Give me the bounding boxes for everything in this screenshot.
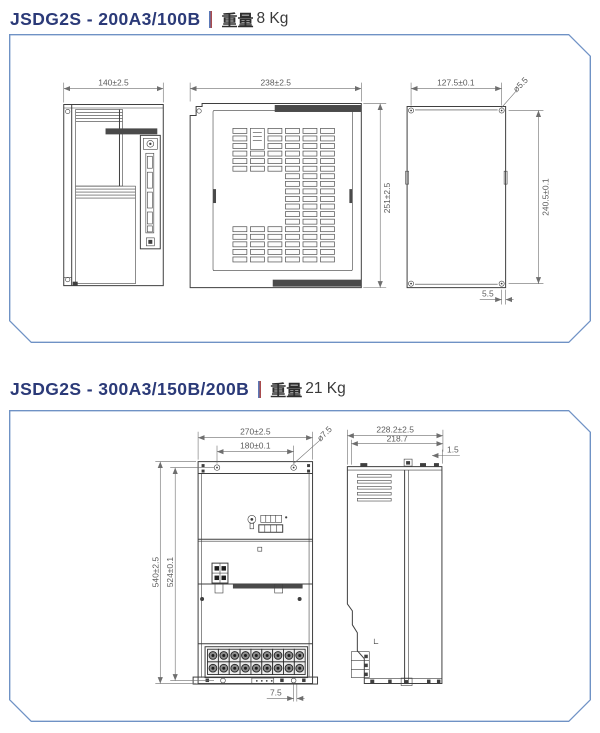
dim-hole-pitch: 180±0.1 bbox=[217, 441, 294, 464]
dim-top-height: 251±2.5 bbox=[364, 104, 393, 288]
model-name-2: JSDG2S - 300A3/150B/200B bbox=[10, 379, 249, 400]
dim-text-front-width-2: 270±2.5 bbox=[240, 427, 271, 437]
weight-group-1: 重量 8 Kg bbox=[221, 7, 288, 31]
dim-top-width: 238±2.5 bbox=[191, 78, 362, 102]
drawing-panel-1: 140±2.5 238±2.5 251±2.5 bbox=[9, 34, 591, 343]
dim-bottom-offset: 7.5 bbox=[267, 685, 305, 702]
dim-text-top-height: 251±2.5 bbox=[383, 183, 393, 214]
dim-mount-height: 240.5±0.1 bbox=[509, 111, 551, 284]
section1-title: JSDG2S - 200A3/100B 重量 8 Kg bbox=[10, 7, 288, 31]
dim-mount-hole: ø5.5 bbox=[502, 75, 530, 108]
dim-side-depth: 228.2±2.5 bbox=[348, 425, 444, 465]
weight-label-1: 重量 bbox=[221, 7, 253, 31]
drawing-panel-2: 270±2.5 180±0.1 ø7.5 540±2.5 524±0.1 bbox=[9, 410, 591, 722]
front-view bbox=[191, 104, 362, 288]
dim-text-mount-width: 127.5±0.1 bbox=[438, 78, 476, 88]
page: { "sections": [ { "model": "JSDG2S - 200… bbox=[0, 0, 600, 733]
dim-hole-dia: ø7.5 bbox=[294, 424, 334, 464]
dim-mount-width: 127.5±0.1 bbox=[411, 78, 502, 106]
mounting-view bbox=[406, 107, 508, 288]
terminal-strip bbox=[208, 650, 306, 675]
dim-text-front-height: 540±2.5 bbox=[151, 557, 161, 588]
section2-title: JSDG2S - 300A3/150B/200B 重量 21 Kg bbox=[10, 377, 346, 401]
weight-label-2: 重量 bbox=[270, 377, 302, 401]
dim-mount-offset: 5.5 bbox=[480, 289, 514, 305]
front-left-view bbox=[64, 105, 164, 286]
weight-value-2: 21 Kg bbox=[305, 380, 346, 398]
vent-grid bbox=[233, 129, 335, 263]
weight-group-2: 重量 21 Kg bbox=[270, 377, 346, 401]
model-name-1: JSDG2S - 200A3/100B bbox=[10, 9, 200, 30]
dim-hole-pitch-v: 524±0.1 bbox=[166, 468, 215, 681]
dim-text-side-depth-inner: 218.7 bbox=[387, 434, 408, 444]
dim-text-side-offset: 1.5 bbox=[447, 445, 459, 455]
side-view bbox=[348, 460, 443, 686]
dim-text-bottom-offset: 7.5 bbox=[270, 688, 282, 698]
weight-value-1: 8 Kg bbox=[257, 10, 289, 28]
dim-text-top-width: 238±2.5 bbox=[261, 78, 292, 88]
dim-text-hole-pitch-v: 524±0.1 bbox=[166, 557, 176, 588]
front-view-large bbox=[194, 462, 318, 684]
dim-side-depth-inner: 218.7 bbox=[352, 434, 444, 465]
dim-text-hole-dia: ø7.5 bbox=[315, 424, 334, 443]
dim-text-front-width: 140±2.5 bbox=[99, 78, 130, 88]
dim-front-width: 140±2.5 bbox=[64, 78, 164, 103]
dim-text-mount-hole: ø5.5 bbox=[511, 75, 530, 94]
dim-side-offset: 1.5 bbox=[432, 445, 460, 464]
title-divider-1 bbox=[209, 11, 212, 28]
drawing2-svg: 270±2.5 180±0.1 ø7.5 540±2.5 524±0.1 bbox=[10, 411, 589, 720]
dim-text-mount-offset: 5.5 bbox=[482, 289, 494, 299]
dim-text-mount-height: 240.5±0.1 bbox=[541, 178, 551, 216]
drawing1-svg: 140±2.5 238±2.5 251±2.5 bbox=[10, 35, 589, 341]
title-divider-2 bbox=[258, 381, 261, 398]
dim-text-hole-pitch: 180±0.1 bbox=[240, 441, 271, 451]
